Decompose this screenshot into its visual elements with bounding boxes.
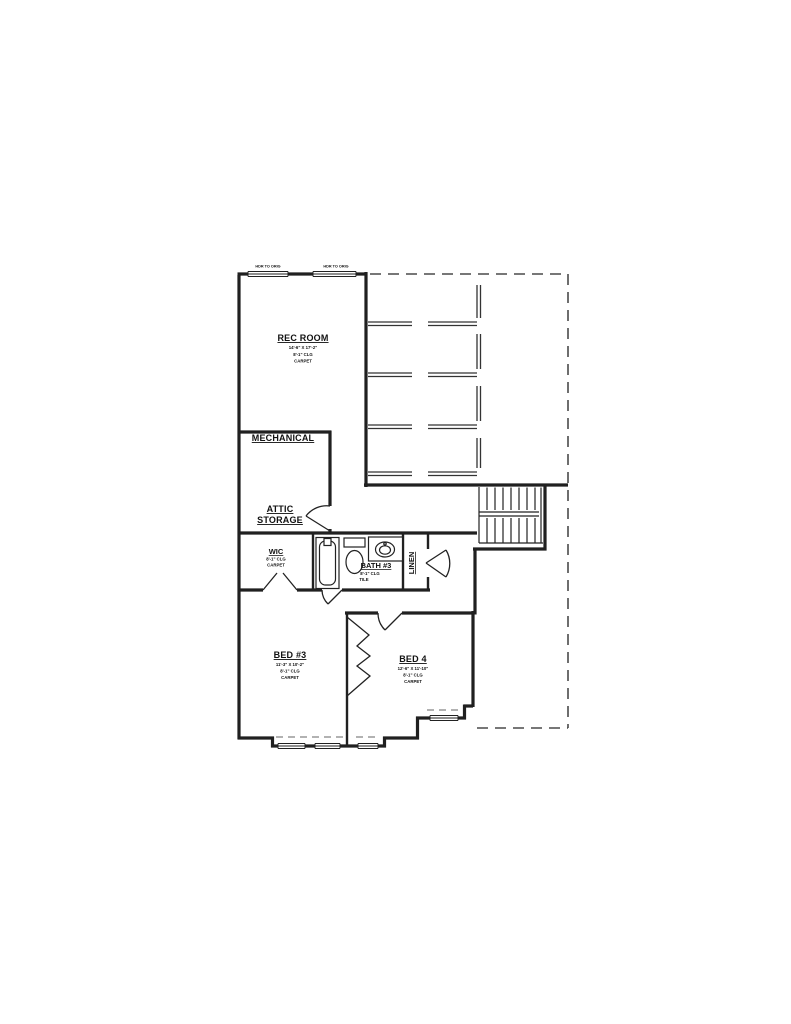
svg-text:CARPET: CARPET <box>294 359 312 364</box>
svg-text:STORAGE: STORAGE <box>257 515 303 525</box>
bed4-door <box>378 613 402 630</box>
svg-text:BED 4: BED 4 <box>399 654 427 664</box>
linen-label: LINEN <box>407 552 416 575</box>
interior-walls <box>239 431 477 747</box>
window-note-1: HDR TO ORIG <box>255 265 280 269</box>
svg-text:BED #3: BED #3 <box>274 650 307 660</box>
rec-room-label: REC ROOM 14'-6" X 17'-2" 8'-1" CLG CARPE… <box>277 333 328 364</box>
attic-framing-lines <box>368 285 481 476</box>
mechanical-label: MECHANICAL <box>252 433 315 443</box>
svg-text:8'-1" CLG: 8'-1" CLG <box>266 557 286 562</box>
bed3-label: BED #3 11'-3" X 10'-2" 8'-1" CLG CARPET <box>274 650 307 680</box>
svg-text:ATTIC: ATTIC <box>267 504 294 514</box>
bed4-label: BED 4 12'-6" X 11'-10" 8'-1" CLG CARPET <box>398 654 429 684</box>
svg-text:8'-1" CLG: 8'-1" CLG <box>293 352 313 357</box>
hall-door <box>322 590 342 604</box>
floor-plan-drawing: HDR TO ORIG HDR TO ORIG REC ROOM 14'-6" … <box>0 0 791 1024</box>
bath3-label: BATH #3 8'-1" CLG TILE <box>359 561 391 582</box>
linen-door <box>426 550 450 577</box>
svg-text:CARPET: CARPET <box>281 675 299 680</box>
svg-text:11'-3" X 10'-2": 11'-3" X 10'-2" <box>276 662 304 667</box>
attic-storage-door <box>306 506 330 531</box>
svg-text:REC ROOM: REC ROOM <box>277 333 328 343</box>
svg-text:8'-1" CLG: 8'-1" CLG <box>280 669 300 674</box>
attic-storage-label: ATTIC STORAGE <box>257 504 303 525</box>
svg-text:TILE: TILE <box>359 577 368 582</box>
floor-plan-page: HDR TO ORIG HDR TO ORIG REC ROOM 14'-6" … <box>0 0 791 1024</box>
svg-text:8'-1" CLG: 8'-1" CLG <box>403 673 423 678</box>
closet-bifold-doors <box>347 617 370 696</box>
wic-doors <box>263 573 297 590</box>
wic-label: WIC 8'-1" CLG CARPET <box>266 547 286 568</box>
svg-text:BATH #3: BATH #3 <box>361 561 392 570</box>
sink-faucet <box>384 543 386 545</box>
window-note-2: HDR TO ORIG <box>323 265 348 269</box>
staircase <box>479 487 543 543</box>
svg-text:14'-6" X 17'-2": 14'-6" X 17'-2" <box>289 345 318 350</box>
tub-faucet <box>324 539 331 546</box>
svg-text:CARPET: CARPET <box>404 679 422 684</box>
svg-text:8'-1" CLG: 8'-1" CLG <box>360 571 380 576</box>
svg-text:WIC: WIC <box>269 547 284 556</box>
svg-text:12'-6" X 11'-10": 12'-6" X 11'-10" <box>398 666 429 671</box>
toilet-tank <box>344 538 365 547</box>
svg-text:CARPET: CARPET <box>267 563 285 568</box>
